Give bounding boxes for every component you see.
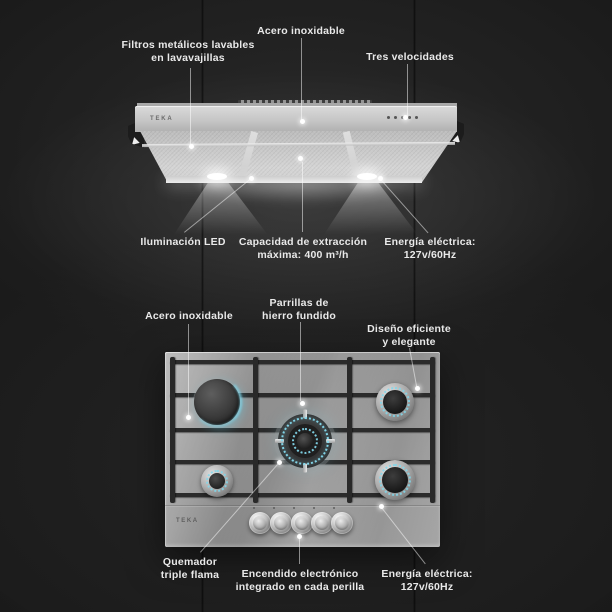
callout-dot: [186, 415, 191, 420]
callout-dot: [415, 386, 420, 391]
callout-label-led: Iluminación LED: [140, 236, 225, 249]
burner-cap: [297, 433, 313, 449]
grate-bar: [170, 360, 435, 364]
callout-dot: [277, 460, 282, 465]
hood-button: [394, 116, 397, 119]
callout-label-grates: Parrillas de hierro fundido: [262, 297, 336, 323]
callout-label-capacity: Capacidad de extracción máxima: 400 m³/h: [239, 236, 367, 262]
grate-bar: [430, 357, 435, 503]
callout-line: [300, 322, 301, 401]
callout-label-triple-burner: Quemador triple flama: [161, 556, 219, 582]
callout-dot: [297, 534, 302, 539]
callout-line: [188, 324, 189, 415]
burner-knob: [249, 512, 271, 534]
callout-dot: [379, 504, 384, 509]
led-lamp-left: [207, 173, 227, 180]
callout-line: [190, 68, 191, 146]
callout-label-power-hood: Energía eléctrica: 127v/60Hz: [384, 236, 475, 262]
hood-button: [387, 116, 390, 119]
callout-dot: [189, 144, 194, 149]
grate-bar: [170, 357, 175, 503]
burner-center-triple-flame: [278, 414, 332, 468]
hood-button: [408, 116, 411, 119]
burner-knob: [270, 512, 292, 534]
callout-label-design: Diseño eficiente y elegante: [367, 323, 451, 349]
grate-bar: [347, 357, 352, 503]
callout-dot: [300, 119, 305, 124]
callout-label-ignition: Encendido electrónico integrado en cada …: [236, 568, 365, 594]
callout-label-stainless-hood: Acero inoxidable: [257, 25, 345, 38]
burner-knob: [291, 512, 313, 534]
cooktop-surface: TEKA: [165, 352, 440, 547]
callout-label-filters: Filtros metálicos lavables en lavavajill…: [121, 39, 254, 65]
callout-dot: [249, 176, 254, 181]
callout-label-speeds: Tres velocidades: [366, 51, 454, 64]
burner-bottom-right: [375, 460, 415, 500]
callout-dot: [298, 156, 303, 161]
burner-top-left: [194, 379, 240, 425]
cast-iron-grates: [170, 357, 435, 503]
hood-brand-logo: TEKA: [150, 116, 174, 122]
hood-front-panel: [135, 106, 457, 132]
hood-button: [415, 116, 418, 119]
burner-bottom-left: [201, 465, 233, 497]
callout-line: [407, 64, 408, 117]
led-lamp-right: [357, 173, 377, 180]
burner-knob: [311, 512, 333, 534]
callout-line: [301, 38, 302, 121]
callout-dot: [378, 176, 383, 181]
infographic-canvas: TEKA: [0, 0, 612, 612]
burner-top-right: [376, 383, 414, 421]
callout-line: [299, 538, 300, 564]
callout-label-stainless-cooktop: Acero inoxidable: [145, 310, 233, 323]
callout-dot: [403, 115, 408, 120]
burner-knob: [331, 512, 353, 534]
callout-label-power-cooktop: Energía eléctrica: 127v/60Hz: [381, 568, 472, 594]
knob-tick-marks: [253, 507, 353, 509]
callout-line: [302, 162, 303, 232]
cooktop-brand-logo: TEKA: [176, 518, 199, 524]
grate-bar: [253, 357, 258, 503]
callout-dot: [300, 401, 305, 406]
